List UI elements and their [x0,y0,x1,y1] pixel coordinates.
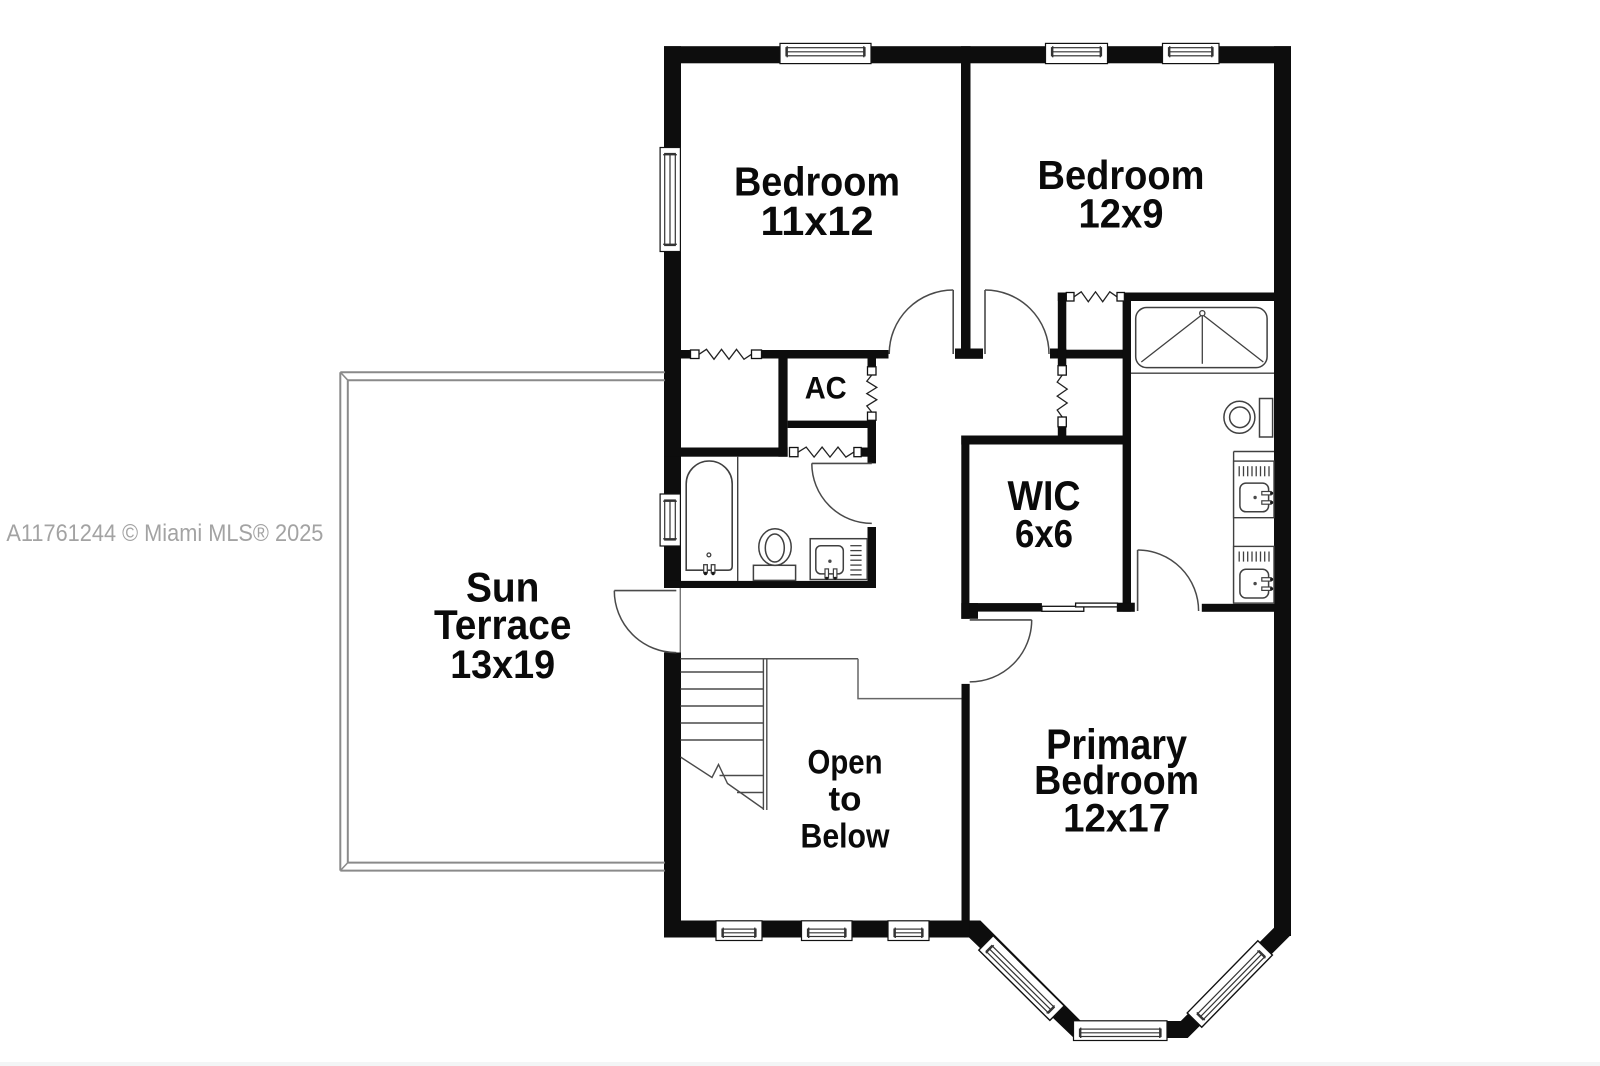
svg-text:13x19: 13x19 [450,643,555,687]
svg-text:6x6: 6x6 [1015,513,1073,556]
svg-text:Open: Open [808,744,883,782]
svg-text:WIC: WIC [1008,472,1081,519]
svg-text:to: to [829,781,862,819]
svg-text:AC: AC [805,369,847,405]
svg-text:12x17: 12x17 [1063,796,1170,840]
svg-text:Below: Below [801,818,890,856]
svg-text:A11761244 © Miami MLS® 2025: A11761244 © Miami MLS® 2025 [6,520,323,547]
svg-text:Terrace: Terrace [434,601,572,648]
svg-text:12x9: 12x9 [1079,190,1164,236]
svg-text:11x12: 11x12 [761,198,874,244]
